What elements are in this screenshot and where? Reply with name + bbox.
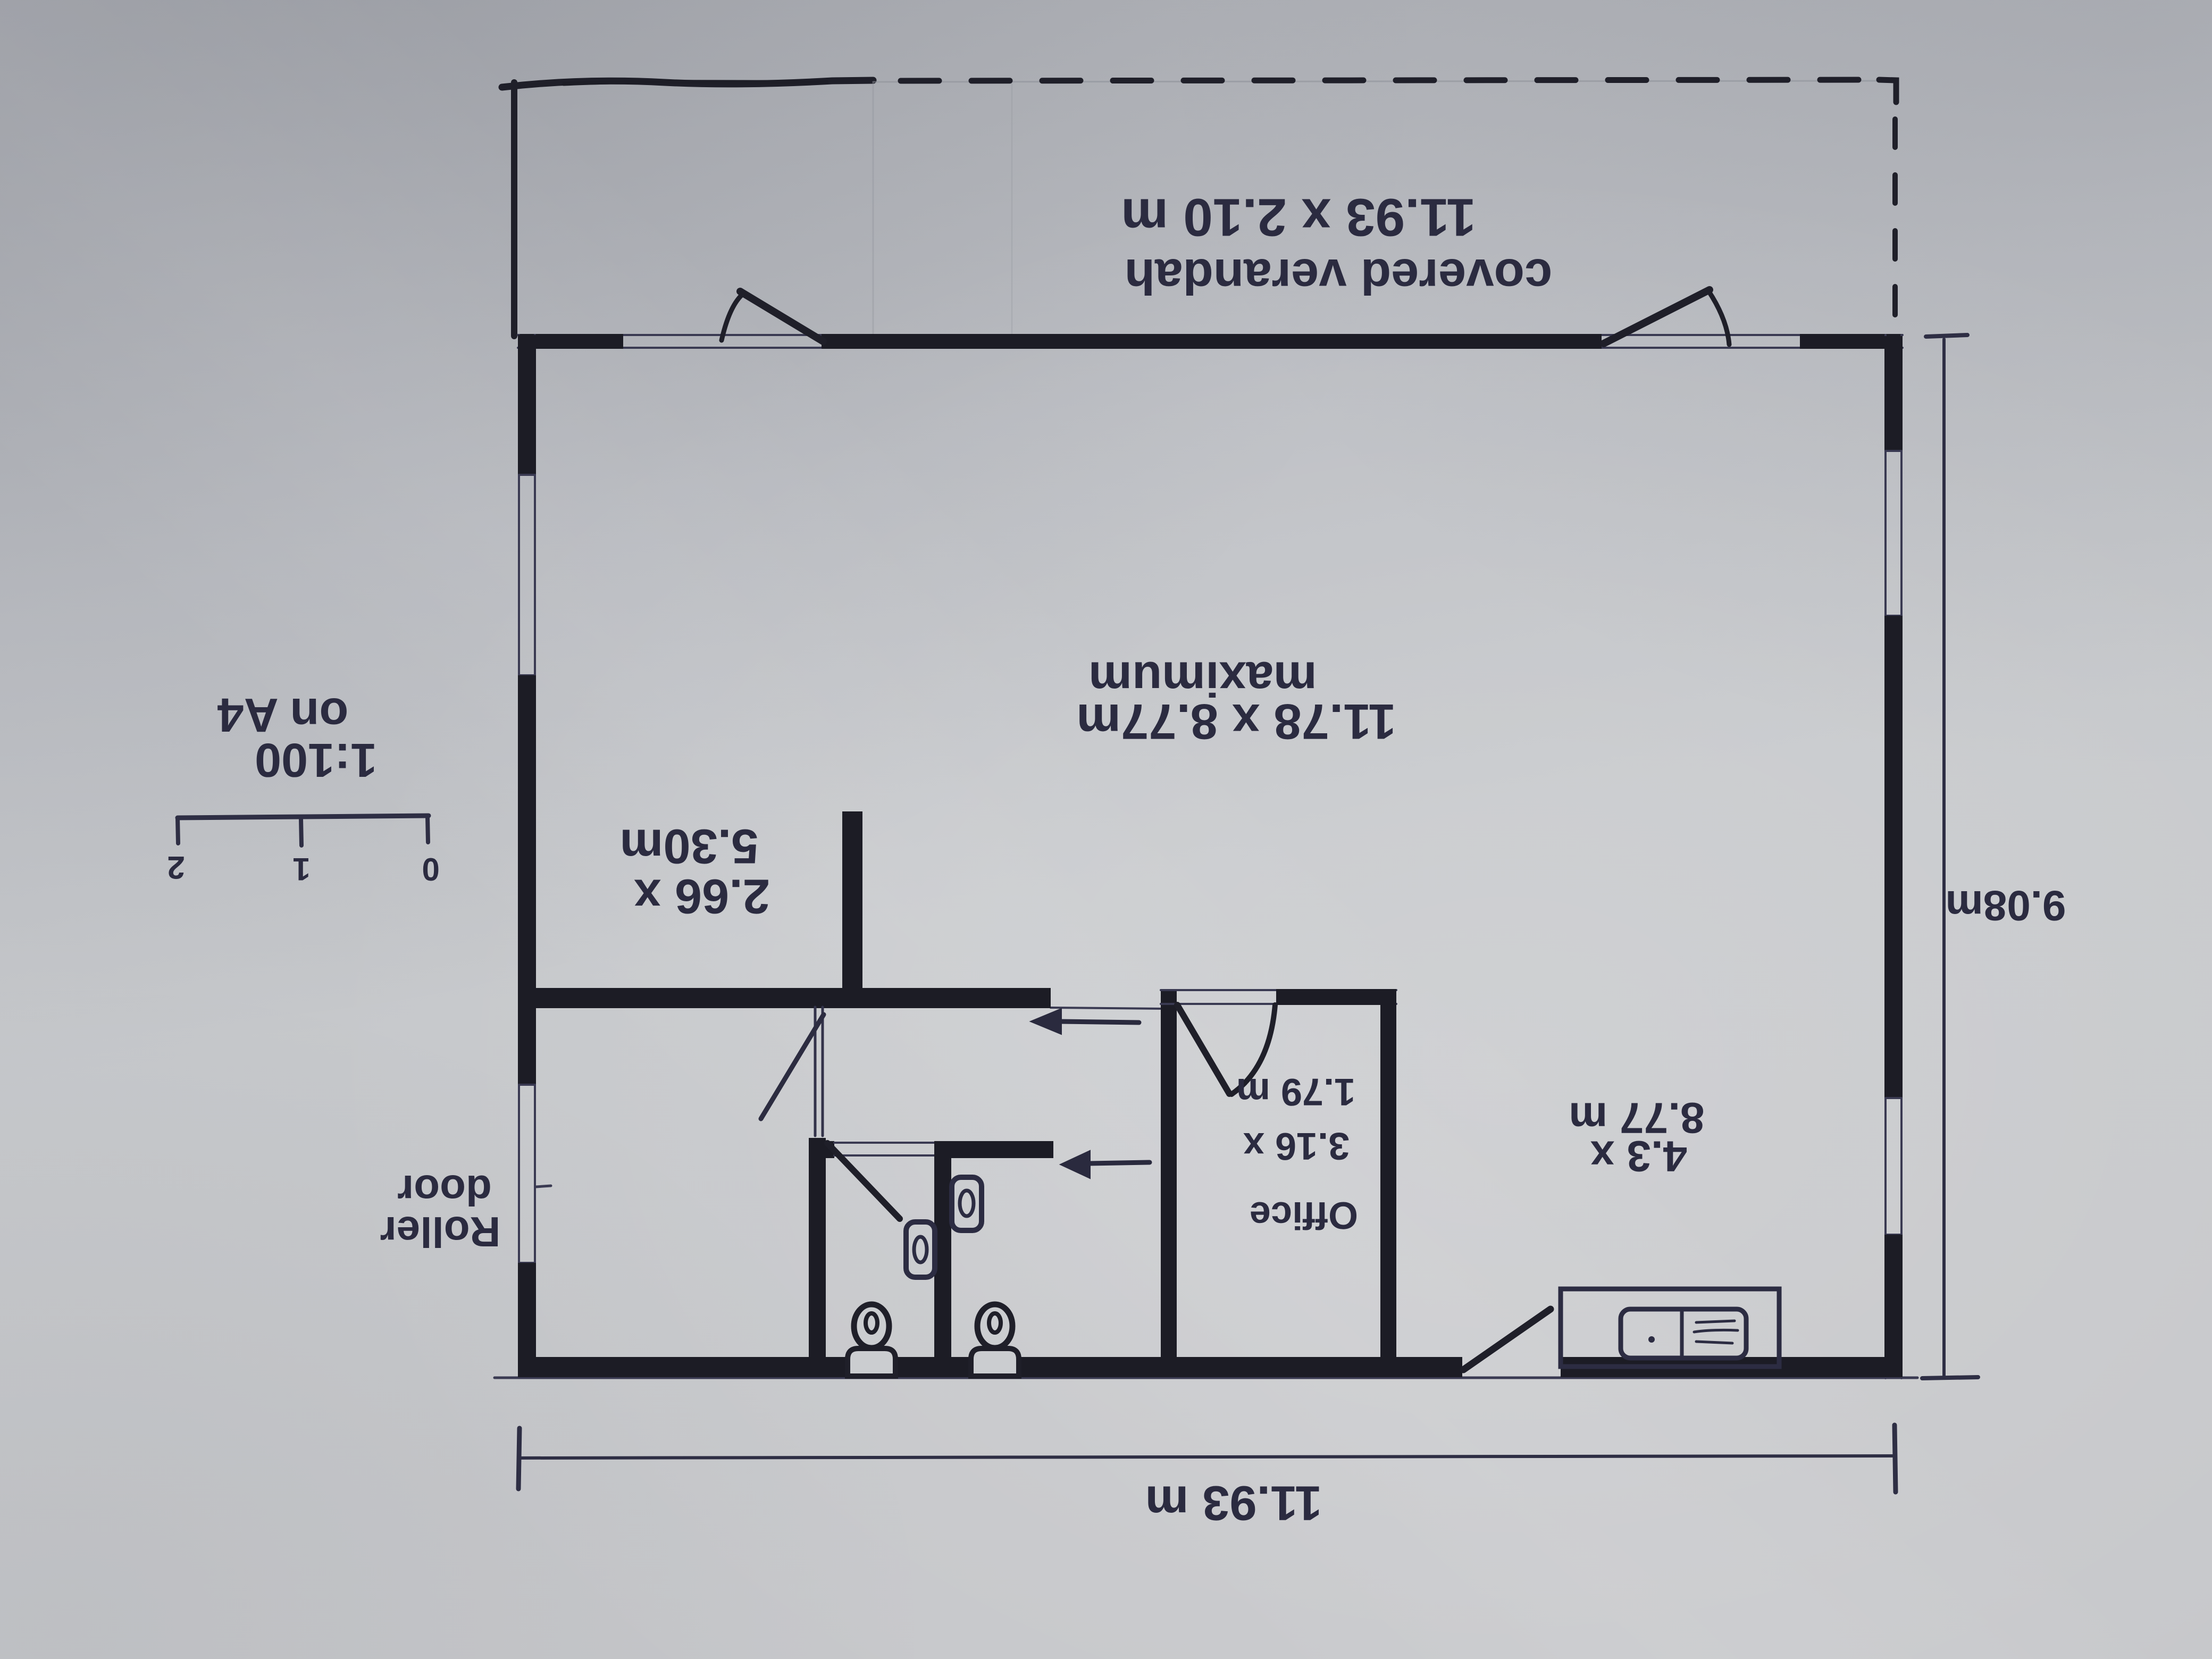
svg-text:3.16 x: 3.16 x (1243, 1125, 1350, 1167)
svg-text:1: 1 (292, 851, 310, 887)
svg-text:Roller: Roller (380, 1208, 501, 1255)
svg-text:11.93 x 2.10 m: 11.93 x 2.10 m (1121, 188, 1476, 247)
svg-text:covered verandah: covered verandah (1125, 249, 1553, 305)
svg-text:9.08m: 9.08m (1946, 882, 2066, 929)
svg-text:door: door (397, 1167, 492, 1214)
svg-text:Office: Office (1250, 1194, 1358, 1236)
svg-text:4.3 x: 4.3 x (1590, 1132, 1687, 1180)
svg-text:on A4: on A4 (217, 688, 349, 741)
svg-text:2.66 x: 2.66 x (634, 869, 770, 924)
svg-text:11.93 m: 11.93 m (1145, 1476, 1322, 1530)
svg-text:1:100: 1:100 (255, 733, 377, 786)
svg-text:1.79 m: 1.79 m (1236, 1070, 1355, 1113)
svg-text:11.78 x 8.77m: 11.78 x 8.77m (1076, 694, 1396, 750)
svg-text:5.30m: 5.30m (620, 819, 759, 874)
svg-text:0: 0 (422, 851, 439, 887)
svg-text:2: 2 (167, 850, 185, 885)
